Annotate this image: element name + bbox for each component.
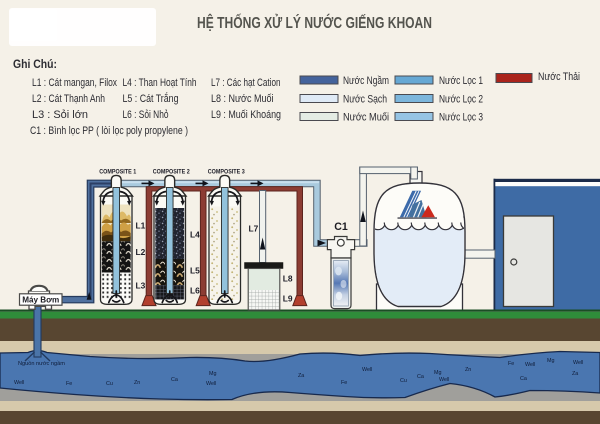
svg-text:L3 : Sỏi lớn: L3 : Sỏi lớn	[32, 109, 88, 121]
svg-text:Nước Lọc 2: Nước Lọc 2	[439, 94, 483, 106]
svg-text:L8: L8	[283, 274, 293, 284]
svg-text:COMPOSITE 1: COMPOSITE 1	[99, 168, 136, 175]
svg-text:C1 : Bình lọc PP ( lòi lọc pol: C1 : Bình lọc PP ( lòi lọc poly propylen…	[30, 125, 188, 137]
svg-text:Ca: Ca	[417, 374, 424, 380]
svg-text:Fe: Fe	[341, 380, 347, 386]
svg-text:Nước Sạch: Nước Sạch	[343, 94, 387, 106]
svg-text:COMPOSITE 2: COMPOSITE 2	[153, 168, 190, 175]
svg-text:L6: L6	[190, 286, 200, 296]
svg-text:L6 : Sỏi Nhỏ: L6 : Sỏi Nhỏ	[123, 109, 169, 121]
svg-text:L2: L2	[136, 247, 146, 257]
svg-text:L2 : Cát Thạnh Anh: L2 : Cát Thạnh Anh	[32, 93, 105, 105]
svg-text:Fe: Fe	[66, 381, 72, 387]
svg-text:Nước Lọc 1: Nước Lọc 1	[439, 75, 483, 87]
svg-text:HỆ THỐNG XỬ LÝ NƯỚC GIẾNG KHOA: HỆ THỐNG XỬ LÝ NƯỚC GIẾNG KHOAN	[197, 14, 432, 32]
svg-text:Ghi Chú:: Ghi Chú:	[13, 59, 57, 71]
svg-text:Zn: Zn	[465, 367, 471, 373]
svg-text:COMPOSITE 3: COMPOSITE 3	[208, 168, 245, 175]
svg-text:Nước Ngầm: Nước Ngầm	[343, 75, 389, 87]
svg-text:L1 : Cát mangan, Filox: L1 : Cát mangan, Filox	[32, 77, 117, 89]
svg-text:Za: Za	[298, 373, 304, 379]
svg-text:L4 : Than Hoạt Tính: L4 : Than Hoạt Tính	[123, 77, 197, 89]
svg-text:Nước Thải: Nước Thải	[538, 71, 580, 83]
svg-text:Nước Muối: Nước Muối	[343, 112, 389, 124]
svg-text:Nguồn nước ngầm: Nguồn nước ngầm	[18, 361, 65, 367]
svg-text:Well: Well	[573, 360, 583, 366]
svg-text:Za: Za	[572, 371, 578, 377]
svg-text:Máy Bơm: Máy Bơm	[22, 295, 59, 305]
svg-text:Ca: Ca	[520, 376, 527, 382]
svg-text:Cu: Cu	[400, 378, 407, 384]
svg-text:Well: Well	[206, 381, 216, 387]
svg-text:Mg: Mg	[434, 370, 442, 376]
svg-text:Ca: Ca	[171, 377, 178, 383]
svg-text:Cu: Cu	[106, 381, 113, 387]
svg-text:Well: Well	[525, 362, 535, 368]
svg-text:Zn: Zn	[134, 380, 140, 386]
svg-text:L5: L5	[190, 266, 200, 276]
svg-text:L7 : Các hạt Cation: L7 : Các hạt Cation	[211, 77, 281, 89]
svg-text:L7: L7	[249, 224, 259, 234]
svg-text:L5 : Cát Trắng: L5 : Cát Trắng	[123, 92, 179, 105]
svg-text:L8 : Nước Muối: L8 : Nước Muối	[211, 93, 274, 105]
svg-text:Fe: Fe	[508, 361, 514, 367]
svg-text:L9: L9	[283, 294, 293, 304]
svg-text:L1: L1	[136, 221, 146, 231]
svg-text:L9 : Muối Khoáng: L9 : Muối Khoáng	[211, 109, 281, 121]
svg-text:Mg: Mg	[547, 358, 555, 364]
svg-text:C1: C1	[334, 221, 348, 233]
svg-text:L4: L4	[190, 230, 200, 240]
svg-text:Well: Well	[362, 367, 372, 373]
svg-text:Well: Well	[439, 377, 449, 383]
svg-text:L3: L3	[136, 281, 146, 291]
svg-text:Mg: Mg	[209, 371, 217, 377]
svg-text:Well: Well	[14, 380, 24, 386]
svg-text:Nước Lọc 3: Nước Lọc 3	[439, 112, 483, 124]
